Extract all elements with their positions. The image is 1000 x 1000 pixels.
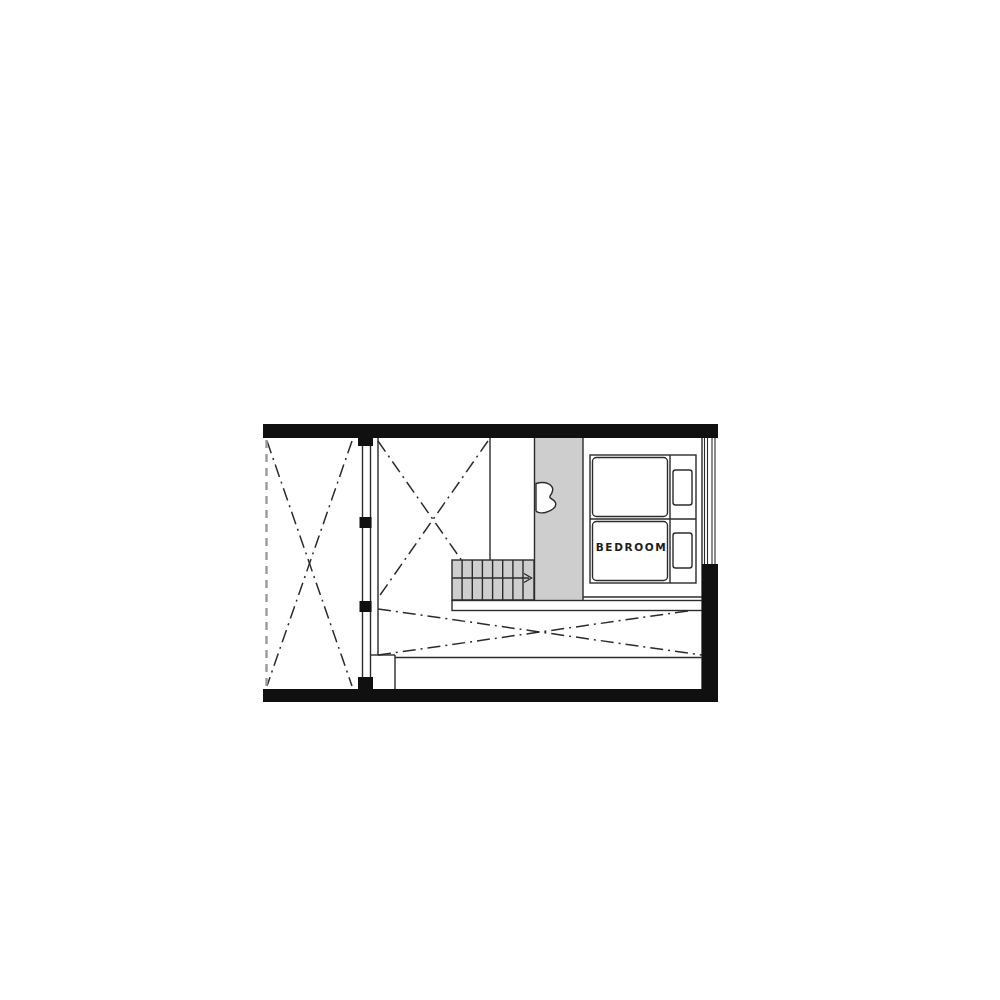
window-mullion-icon <box>358 438 373 446</box>
top-wall <box>263 424 718 438</box>
bedroom-label: BEDROOM <box>596 541 667 553</box>
stairs <box>452 560 534 600</box>
window-mullion-icon <box>360 601 372 612</box>
right-wall <box>702 564 718 702</box>
plan-background <box>0 0 1000 1000</box>
window-mullion-icon <box>358 677 373 689</box>
bed <box>590 455 696 583</box>
landing-floor <box>534 438 583 600</box>
floor-plan: BEDROOM <box>0 0 1000 1000</box>
landing-corridor <box>534 438 583 600</box>
mezzanine-edge-strip <box>452 601 702 611</box>
bottom-wall <box>263 689 718 702</box>
window-mullion-icon <box>360 517 372 528</box>
page: BEDROOM <box>0 0 1000 1000</box>
